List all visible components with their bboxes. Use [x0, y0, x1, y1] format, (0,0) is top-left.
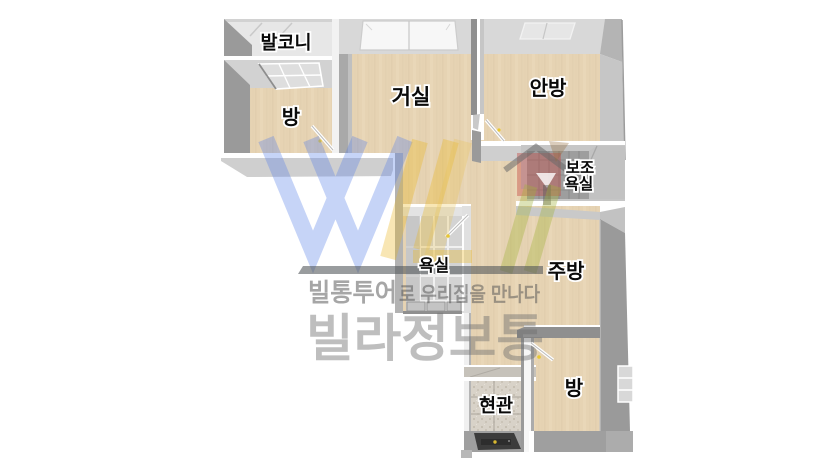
svg-text:주방: 주방 — [548, 260, 585, 283]
svg-text:방: 방 — [282, 106, 301, 129]
svg-text:방: 방 — [565, 377, 584, 400]
svg-text:로 우리집을 만나다: 로 우리집을 만나다 — [399, 283, 541, 306]
svg-text:안방: 안방 — [530, 77, 567, 100]
svg-text:욕실: 욕실 — [565, 175, 594, 193]
svg-text:거실: 거실 — [392, 86, 431, 109]
svg-text:보조: 보조 — [566, 160, 595, 177]
svg-text:현관: 현관 — [479, 395, 513, 416]
svg-text:빌라정보통: 빌라정보통 — [306, 310, 544, 367]
svg-text:욕실: 욕실 — [419, 256, 449, 275]
svg-text:발코니: 발코니 — [260, 32, 311, 53]
svg-text:빌통투어: 빌통투어 — [308, 279, 397, 307]
